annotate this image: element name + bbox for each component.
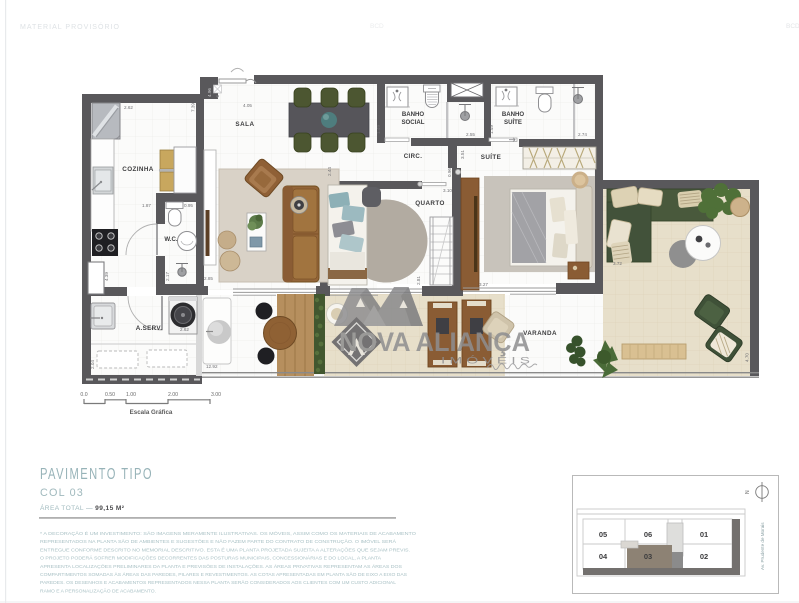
svg-text:1.49: 1.49 — [376, 125, 381, 134]
svg-text:BANHO: BANHO — [502, 111, 525, 118]
svg-text:1.87: 1.87 — [142, 203, 151, 208]
svg-text:2.04: 2.04 — [90, 360, 95, 369]
svg-text:2.17: 2.17 — [165, 272, 170, 281]
svg-text:1.49: 1.49 — [489, 125, 494, 134]
svg-text:0.50: 0.50 — [105, 392, 115, 398]
svg-text:03: 03 — [644, 552, 652, 561]
svg-text:3.00: 3.00 — [211, 392, 221, 398]
svg-text:3.10: 3.10 — [443, 188, 452, 193]
svg-text:2.55: 2.55 — [466, 132, 475, 137]
svg-text:W.C.: W.C. — [164, 236, 178, 243]
svg-text:05: 05 — [599, 530, 607, 539]
svg-text:N: N — [745, 490, 751, 494]
svg-text:* A DECORAÇÃO É UM INVESTIMENT: * A DECORAÇÃO É UM INVESTIMENTO: SÃO IMA… — [40, 531, 417, 536]
svg-text:4.39: 4.39 — [104, 272, 109, 281]
svg-text:2.62: 2.62 — [180, 327, 189, 332]
svg-text:A.SERV.: A.SERV. — [136, 325, 163, 332]
svg-text:12.92: 12.92 — [206, 364, 218, 369]
svg-text:7.39: 7.39 — [191, 103, 196, 112]
svg-text:BCD: BCD — [786, 23, 799, 30]
svg-text:2.62: 2.62 — [124, 105, 133, 110]
svg-text:2.44: 2.44 — [327, 167, 332, 176]
svg-text:06: 06 — [644, 530, 652, 539]
svg-text:QUARTO: QUARTO — [415, 200, 445, 207]
svg-text:O PROJETO PODERÁ SOFRER MODIFI: O PROJETO PODERÁ SOFRER MODIFICAÇÕES DEC… — [40, 556, 381, 561]
svg-text:BANHO: BANHO — [402, 111, 425, 118]
svg-text:1.00: 1.00 — [126, 392, 136, 398]
svg-text:4.70: 4.70 — [745, 353, 750, 362]
svg-text:SUÍTE: SUÍTE — [481, 152, 502, 161]
svg-text:0.96: 0.96 — [447, 168, 452, 177]
svg-text:RAMO E A PERSONALIZAÇÃO DE ACA: RAMO E A PERSONALIZAÇÃO DE ACABAMENTO. — [40, 588, 156, 593]
svg-text:Escala Gráfica: Escala Gráfica — [130, 409, 173, 416]
svg-text:ÁREA TOTAL — 99,15 M²: ÁREA TOTAL — 99,15 M² — [40, 503, 125, 512]
svg-text:ENTREGUE CONFORME DESCRITO NO: ENTREGUE CONFORME DESCRITO NO MEMORIAL D… — [40, 547, 410, 552]
svg-text:02: 02 — [700, 552, 708, 561]
svg-text:SALA: SALA — [235, 121, 254, 128]
svg-text:0.0: 0.0 — [80, 392, 87, 398]
svg-text:SUÍTE: SUÍTE — [504, 118, 522, 126]
svg-text:REPRESENTADOS NA PLANTA SÃO DE: REPRESENTADOS NA PLANTA SÃO DE AMBIENTES… — [40, 539, 396, 544]
svg-text:PAVIMENTO TIPO: PAVIMENTO TIPO — [40, 466, 153, 483]
svg-text:I M Ó V E I S: I M Ó V E I S — [441, 356, 530, 367]
svg-text:COL 03: COL 03 — [40, 487, 84, 499]
svg-text:2.85: 2.85 — [204, 276, 213, 281]
svg-text:MATERIAL PROVISÓRIO: MATERIAL PROVISÓRIO — [20, 22, 120, 31]
svg-text:COZINHA: COZINHA — [122, 166, 154, 173]
svg-text:NOVA ALIANÇA: NOVA ALIANÇA — [339, 327, 530, 357]
svg-text:2.00: 2.00 — [168, 392, 178, 398]
svg-text:3.27: 3.27 — [479, 282, 488, 287]
svg-text:SOCIAL: SOCIAL — [401, 119, 424, 126]
svg-text:04: 04 — [599, 552, 608, 561]
svg-text:01: 01 — [700, 530, 708, 539]
svg-text:CIRC.: CIRC. — [404, 153, 423, 160]
svg-text:3.51: 3.51 — [460, 150, 465, 159]
svg-text:4.05: 4.05 — [243, 103, 252, 108]
svg-text:2.74: 2.74 — [578, 132, 587, 137]
svg-text:2.81: 2.81 — [416, 276, 421, 285]
svg-text:APRESENTA LOCALIZAÇÕES PRELIMI: APRESENTA LOCALIZAÇÕES PRELIMINARES DA P… — [40, 564, 402, 569]
svg-text:PAREDES. OS DESENHOS E ACABAME: PAREDES. OS DESENHOS E ACABAMENTOS REPRE… — [40, 580, 397, 585]
svg-text:COMPARTIMENTOS SOMADAS ÀS ÁREA: COMPARTIMENTOS SOMADAS ÀS ÁREAS DAS PARE… — [40, 572, 407, 577]
svg-text:3.72: 3.72 — [613, 261, 622, 266]
svg-text:0.95: 0.95 — [184, 203, 193, 208]
svg-text:BCD: BCD — [370, 23, 384, 30]
svg-text:4.96: 4.96 — [207, 88, 212, 97]
svg-text:Av. Prudente de Morais: Av. Prudente de Morais — [760, 522, 765, 570]
